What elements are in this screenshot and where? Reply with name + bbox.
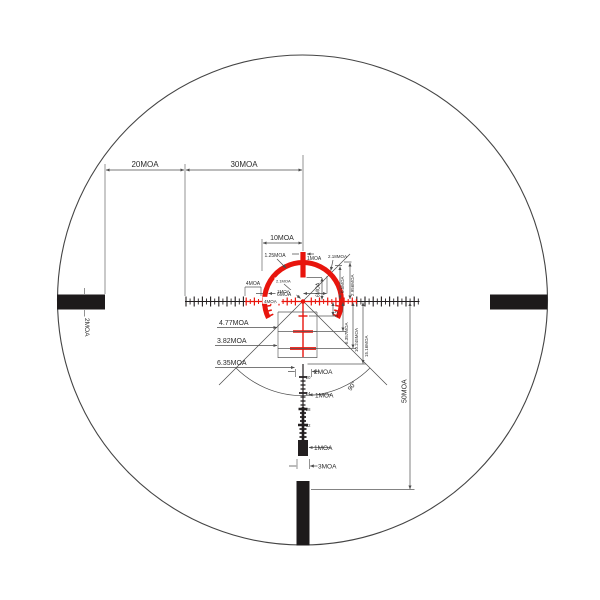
dim-label-125moa: 1.25MOA [264,253,286,259]
dim-label-6357moa: 6.357MOA [344,322,349,344]
dim-label-10245moa: 10.245MOA [354,328,359,352]
red-top-post [300,252,305,278]
ladder-number-24: 24 [306,391,311,396]
dim-label-2moa-post: 2MOA [83,318,90,337]
dim-label-1516moa: 15.16MOA [364,335,369,357]
dim-label-635moa: 6.35MOA [217,360,247,367]
thick-post-left [57,295,105,310]
dim-label-20moa: 20MOA [131,160,159,169]
dim-label-21moa-center: 2.1MOA [276,279,291,284]
dim-label-3moa: 3MOA [318,464,337,471]
reticle-spec-diagram: 20MOA 30MOA 10MOA 1.25MOA 1MOA 2.18MOA 0… [0,0,600,600]
dim-label-4moa-left: 4MOA [264,299,277,304]
ladder-number-32: 32 [306,423,311,428]
dim-label-2moa-ladder: 2MOA [314,369,333,376]
dim-label-1moa-top: 1MOA [307,256,322,262]
dim-label-22: 2.2 [334,310,339,317]
dim-label-6moa-v: 6MOA [316,282,322,297]
dim-label-1moa-ladder: 1MOA [315,393,334,400]
dim-label-2956moa: 2.956MOA [350,274,355,296]
dim-label-218moa: 2.18MOA [328,254,347,259]
dim-label-4moa-bracket: 4MOA [246,281,261,287]
ladder-end-block [298,440,308,456]
ladder-number-20: 20 [306,375,311,380]
dim-label-10moa: 10MOA [270,235,294,242]
ladder-stem-thick [302,407,305,440]
dim-label-1moa-bottom: 1MOA [314,445,333,452]
dim-label-6moa-h: 6MOA [277,292,292,298]
dim-label-382moa: 3.82MOA [217,338,247,345]
thick-post-bottom [297,481,310,546]
dim-label-50moa: 50MOA [402,379,409,403]
thick-post-right [490,295,548,310]
dim-label-30moa: 30MOA [230,160,258,169]
dim-label-477moa: 4.77MOA [219,320,249,327]
dim-label-05moa: 0.5MOA [340,276,345,293]
ladder-number-28: 28 [306,407,311,412]
screenshot-root: 20MOA 30MOA 10MOA 1.25MOA 1MOA 2.18MOA 0… [0,0,600,600]
